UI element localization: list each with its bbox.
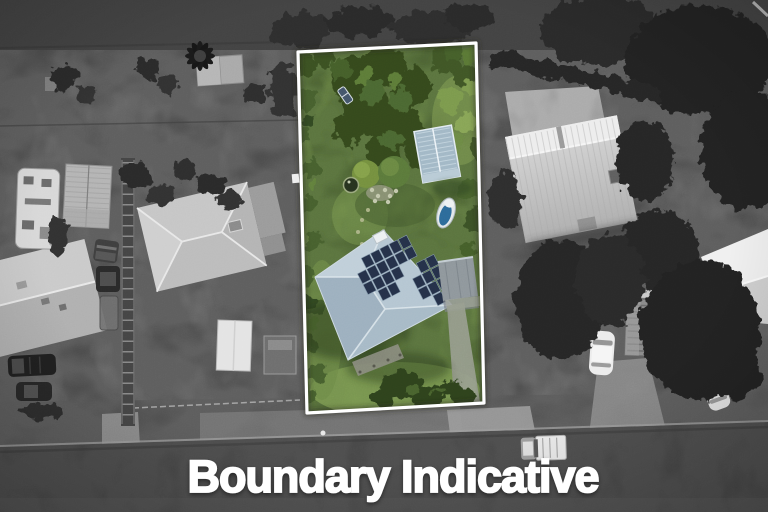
caption-text: Boundary Indicative — [187, 451, 598, 502]
photo-grain — [0, 0, 768, 512]
aerial-photo-stage: Boundary Indicative — [0, 0, 768, 512]
aerial-photo: Boundary Indicative — [0, 0, 768, 512]
